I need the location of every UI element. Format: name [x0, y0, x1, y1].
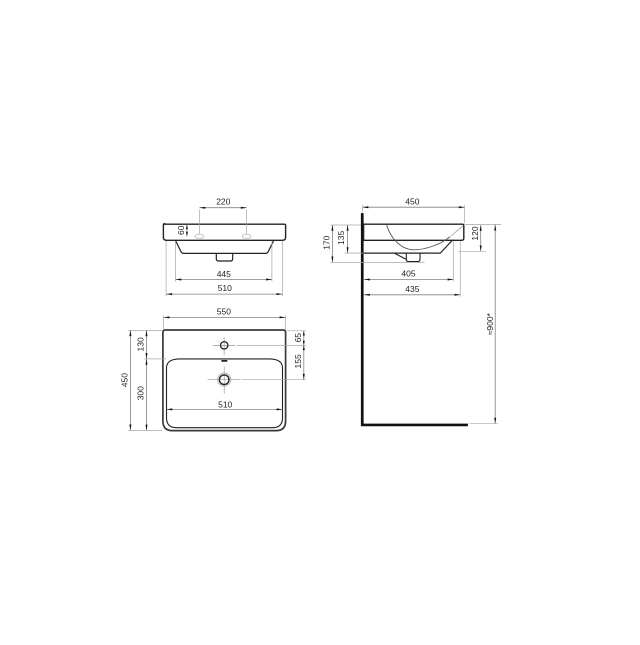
- svg-text:450: 450: [405, 197, 419, 207]
- svg-text:130: 130: [136, 337, 146, 351]
- svg-text:220: 220: [216, 197, 230, 207]
- svg-text:405: 405: [401, 269, 415, 279]
- svg-text:300: 300: [136, 386, 146, 400]
- svg-text:450: 450: [120, 373, 130, 387]
- svg-text:135: 135: [336, 231, 346, 245]
- svg-text:120: 120: [470, 226, 480, 240]
- svg-text:445: 445: [217, 269, 231, 279]
- svg-text:170: 170: [322, 235, 332, 249]
- svg-text:155: 155: [293, 354, 303, 368]
- svg-text:60: 60: [176, 225, 186, 235]
- svg-text:435: 435: [405, 284, 419, 294]
- svg-text:510: 510: [218, 399, 232, 409]
- svg-text:≈900*: ≈900*: [485, 312, 495, 335]
- svg-text:510: 510: [218, 283, 232, 293]
- svg-text:550: 550: [217, 307, 231, 317]
- svg-text:65: 65: [293, 333, 303, 343]
